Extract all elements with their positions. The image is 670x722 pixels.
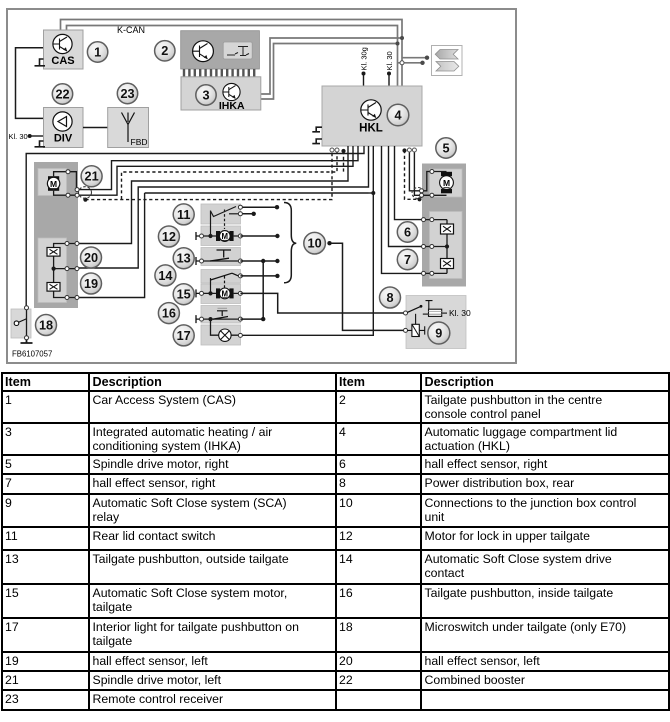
svg-text:Kl. 30: Kl. 30: [449, 308, 471, 318]
svg-text:21: 21: [85, 170, 99, 184]
svg-text:15: 15: [177, 288, 191, 302]
svg-text:K-CAN: K-CAN: [117, 25, 145, 35]
svg-text:2: 2: [161, 44, 168, 58]
svg-text:22: 22: [55, 87, 69, 101]
svg-text:6: 6: [404, 225, 411, 239]
svg-text:CAS: CAS: [51, 55, 74, 67]
svg-text:M: M: [222, 290, 229, 299]
svg-text:HKL: HKL: [359, 123, 383, 135]
svg-text:16: 16: [162, 307, 176, 321]
svg-text:13: 13: [177, 252, 191, 266]
svg-text:Kl. 30: Kl. 30: [385, 51, 394, 70]
svg-text:M: M: [443, 178, 450, 188]
svg-text:7: 7: [404, 253, 411, 267]
svg-text:DIV: DIV: [54, 133, 73, 145]
svg-text:10: 10: [308, 237, 322, 251]
svg-text:5: 5: [442, 141, 449, 155]
svg-text:Kl. 30g: Kl. 30g: [359, 47, 368, 70]
svg-text:12: 12: [162, 230, 176, 244]
svg-text:8: 8: [386, 291, 393, 305]
svg-text:FB6107057: FB6107057: [12, 350, 52, 359]
svg-text:3: 3: [202, 88, 209, 102]
svg-text:1: 1: [94, 45, 101, 59]
svg-text:14: 14: [158, 269, 172, 283]
svg-text:M: M: [50, 179, 57, 189]
svg-text:11: 11: [177, 208, 190, 222]
svg-text:19: 19: [84, 277, 98, 291]
svg-text:23: 23: [120, 87, 134, 101]
svg-text:17: 17: [177, 329, 191, 343]
svg-text:FBD: FBD: [131, 137, 148, 147]
svg-text:Kl. 30: Kl. 30: [9, 132, 28, 141]
svg-text:9: 9: [435, 326, 442, 340]
svg-text:M: M: [222, 232, 229, 241]
svg-text:18: 18: [39, 318, 53, 332]
svg-text:20: 20: [84, 251, 98, 265]
svg-text:IHKA: IHKA: [219, 100, 245, 112]
svg-text:4: 4: [394, 109, 401, 123]
